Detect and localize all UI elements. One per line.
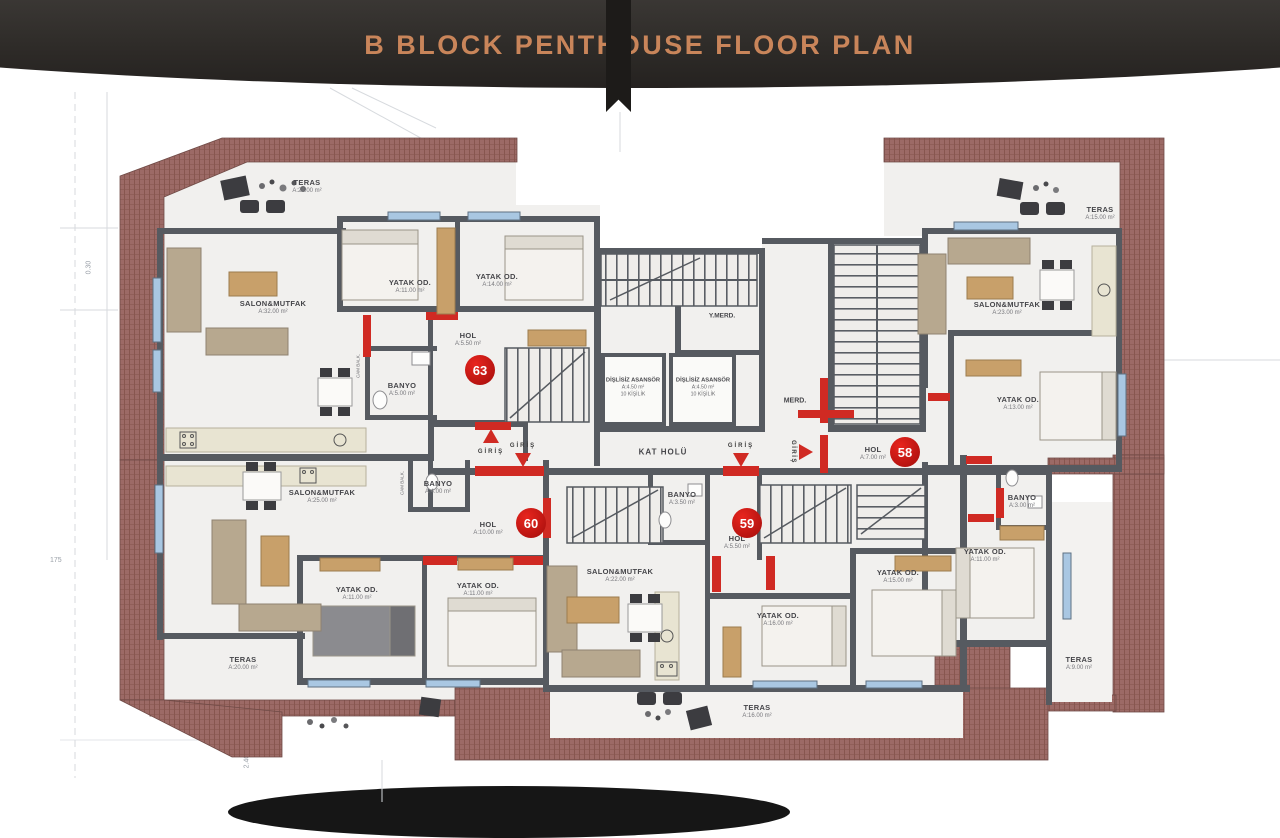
room-label-yatak2-63: YATAK OD.A:14.00 m²	[476, 272, 518, 290]
entrance-label-63: GİRİŞ	[478, 449, 504, 455]
unit-number-60: 60	[516, 508, 546, 538]
room-label-teras-60: TERASA:20.00 m²	[228, 655, 257, 673]
floorplan-drawing	[0, 0, 1280, 802]
room-label-hol-63: HOLA:5.50 m²	[455, 331, 481, 349]
room-label-salon-63: SALON&MUTFAKA:32.00 m²	[240, 299, 307, 317]
room-label-banyo-60: BANYOA:4.00 m²	[424, 479, 453, 497]
room-label-yatak2-60: YATAK OD.A:11.00 m²	[457, 581, 499, 599]
room-label-cambalk-63: CAM BALK.	[356, 354, 361, 378]
room-label-teras-59: TERASA:16.00 m²	[742, 703, 771, 721]
fire-stairs-label: Y.MERD.	[709, 313, 735, 320]
room-label-teras2-58: TERASA:9.00 m²	[1066, 655, 1093, 673]
room-label-yatak1-59: YATAK OD.A:16.00 m²	[757, 611, 799, 629]
entrance-arrow-59	[733, 453, 749, 467]
room-label-hol-58: HOLA:7.00 m²	[860, 445, 886, 463]
entrance-label-58: GİRİŞ	[790, 440, 796, 464]
room-label-salon-58: SALON&MUTFAKA:23.00 m²	[974, 300, 1041, 318]
room-label-yatak2-58: YATAK OD.A:11.00 m²	[964, 547, 1006, 565]
room-label-yatak2-59: YATAK OD.A:15.00 m²	[877, 568, 919, 586]
room-label-cambalk-60: CAM BALK.	[400, 471, 405, 495]
entrance-arrow-58	[799, 444, 813, 460]
elevator-2-label: DİŞLİSİZ ASANSÖRA:4.50 m²10 KİŞİLİK	[676, 377, 730, 400]
entrance-label-60: GİRİŞ	[510, 443, 536, 449]
room-label-yatak1-58: YATAK OD.A:13.00 m²	[997, 395, 1039, 413]
room-label-banyo-63: BANYOA:5.00 m²	[388, 381, 417, 399]
unit-number-59: 59	[732, 508, 762, 538]
stairs-label: MERD.	[784, 398, 807, 405]
floor-hall-label: KAT HOLÜ	[639, 448, 688, 457]
room-label-salon-60: SALON&MUTFAKA:25.00 m²	[289, 488, 356, 506]
room-label-banyo-58: BANYOA:3.00 m²	[1008, 493, 1037, 511]
entrance-arrow-63	[483, 429, 499, 443]
room-label-salon-59: SALON&MUTFAKA:22.00 m²	[587, 567, 654, 585]
room-label-banyo-59: BANYOA:3.50 m²	[668, 490, 697, 508]
room-label-teras1-58: TERASA:15.00 m²	[1085, 205, 1114, 223]
unit-number-58: 58	[890, 437, 920, 467]
room-label-hol-60: HOLA:10.00 m²	[473, 520, 502, 538]
page: { "header": { "title": "B BLOCK PENTHOUS…	[0, 0, 1280, 802]
room-label-teras-63: TERASA:24.00 m²	[292, 178, 321, 196]
room-label-yatak1-60: YATAK OD.A:11.00 m²	[336, 585, 378, 603]
room-label-yatak1-63: YATAK OD.A:11.00 m²	[389, 278, 431, 296]
entrance-arrow-60	[515, 453, 531, 467]
unit-number-63: 63	[465, 355, 495, 385]
elevator-1-label: DİŞLİSİZ ASANSÖRA:4.50 m²10 KİŞİLİK	[606, 377, 660, 400]
entrance-label-59: GİRİŞ	[728, 443, 754, 449]
